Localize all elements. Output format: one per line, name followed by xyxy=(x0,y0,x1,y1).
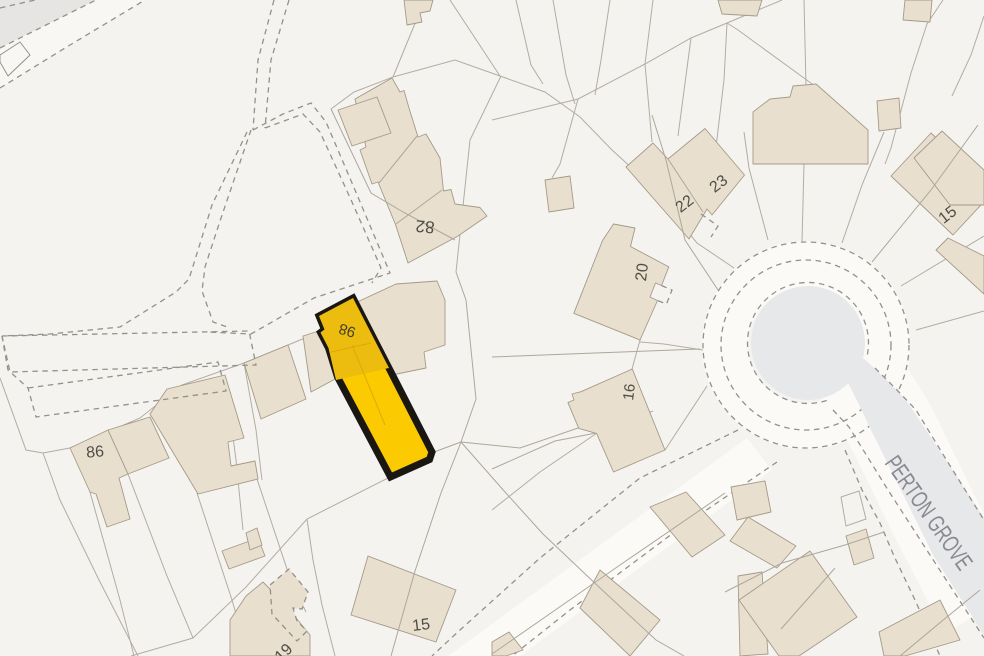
svg-text:20: 20 xyxy=(633,262,652,282)
svg-text:16: 16 xyxy=(620,383,639,402)
svg-text:15: 15 xyxy=(411,616,431,635)
svg-text:86: 86 xyxy=(86,443,105,461)
svg-text:82: 82 xyxy=(415,216,436,237)
